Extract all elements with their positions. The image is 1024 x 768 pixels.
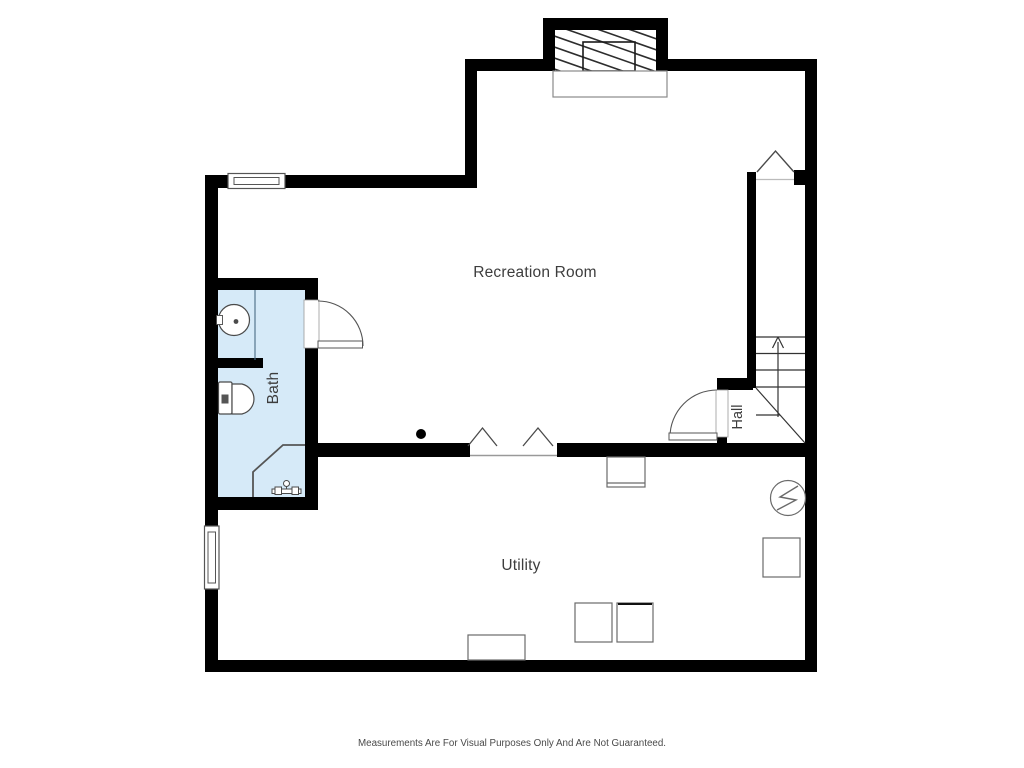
door-opening — [716, 390, 728, 437]
electrical-panel-icon — [771, 481, 806, 516]
hall-label: Hall — [730, 405, 746, 430]
hearth-icon — [553, 71, 667, 97]
column-dot-icon — [416, 429, 426, 439]
rec-utility-opening — [468, 428, 557, 456]
door-swing-icon — [670, 390, 717, 437]
floor-plan-canvas: Recreation Room Bath Hall Utility Measur… — [0, 0, 1024, 768]
toilet-icon — [219, 382, 254, 414]
disclaimer-text: Measurements Are For Visual Purposes Onl… — [358, 738, 666, 749]
stairwell-opening — [756, 151, 794, 180]
recreation-room-label: Recreation Room — [473, 264, 597, 281]
water-heater-icon — [607, 457, 645, 487]
washer-icon — [575, 603, 612, 642]
door-leaf — [669, 433, 717, 440]
freezer-icon — [763, 538, 800, 577]
opening-chevron-icon — [468, 428, 497, 446]
door-leaf — [318, 341, 363, 348]
window-top — [228, 174, 285, 189]
up-arrow-icon — [773, 337, 784, 417]
dryer-icon — [617, 603, 653, 642]
door-opening — [304, 300, 319, 348]
window-left — [205, 526, 220, 589]
door-swing-icon — [318, 301, 363, 346]
bath-door — [304, 300, 363, 348]
floor-plan: Recreation Room Bath Hall Utility Measur… — [0, 0, 1024, 768]
hall-door — [669, 390, 728, 440]
utility-label: Utility — [501, 557, 540, 574]
opening-chevron-icon — [523, 428, 553, 446]
opening-chevron-icon — [757, 151, 794, 172]
bath-label: Bath — [265, 372, 282, 405]
stairs-up-icon — [756, 337, 805, 443]
laundry-tub-icon — [468, 635, 525, 660]
